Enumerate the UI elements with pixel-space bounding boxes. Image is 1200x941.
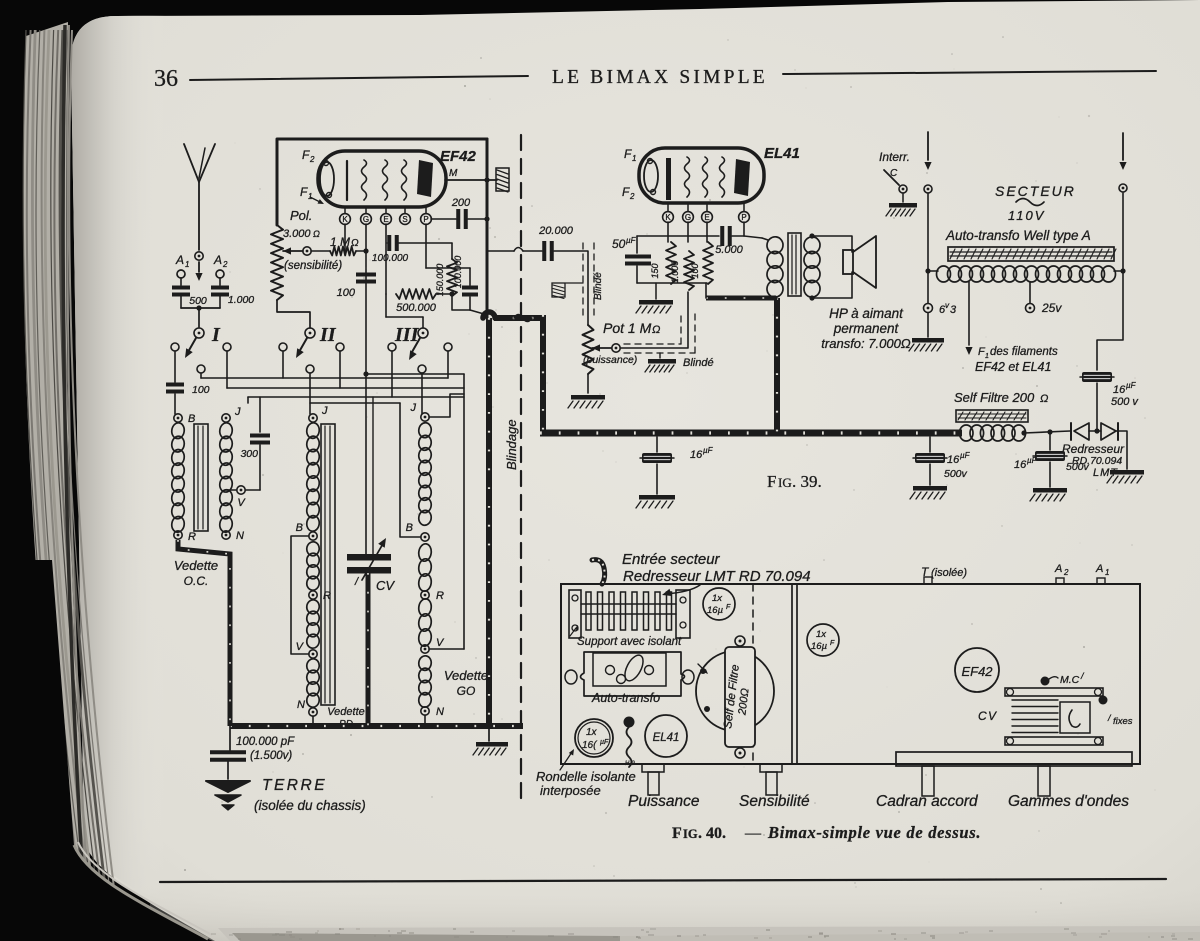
svg-text:B: B (406, 522, 413, 534)
svg-text:M.C: M.C (1060, 674, 1080, 686)
svg-text:B: B (296, 522, 303, 534)
svg-text:V: V (988, 709, 997, 723)
svg-text:F: F (672, 825, 682, 842)
svg-text:100: 100 (337, 287, 356, 299)
svg-text:Sensibilité: Sensibilité (739, 793, 810, 810)
svg-text:F: F (300, 185, 308, 199)
svg-text:E: E (383, 215, 388, 224)
svg-text:EF42: EF42 (961, 664, 993, 679)
svg-text:(isolée du chassis): (isolée du chassis) (254, 798, 366, 813)
svg-text:F: F (830, 640, 835, 647)
svg-text:150: 150 (650, 263, 660, 278)
svg-text:500: 500 (189, 295, 207, 307)
svg-text:16(: 16( (582, 740, 598, 751)
svg-text:N: N (236, 530, 244, 542)
svg-text:1.000: 1.000 (670, 261, 680, 284)
svg-text:transfo: 7.000Ω: transfo: 7.000Ω (821, 336, 910, 351)
svg-text:1: 1 (185, 260, 189, 269)
svg-text:I: I (211, 324, 221, 346)
svg-text:(puissance): (puissance) (583, 354, 637, 366)
svg-text:Ω: Ω (1040, 393, 1048, 405)
svg-text:3: 3 (950, 304, 957, 316)
svg-text:G: G (363, 215, 369, 224)
svg-text:Gammes d'ondes: Gammes d'ondes (1008, 793, 1129, 810)
svg-text:1: 1 (632, 154, 636, 163)
svg-text:µF: µF (703, 446, 714, 455)
svg-text:EF42: EF42 (440, 148, 477, 165)
svg-text:K: K (665, 213, 671, 222)
svg-text:16µ: 16µ (811, 641, 828, 652)
svg-text:EL41: EL41 (653, 732, 680, 744)
svg-text:GO: GO (457, 684, 476, 698)
svg-text:(sensibilité): (sensibilité) (284, 260, 342, 272)
svg-text:2: 2 (629, 192, 635, 201)
svg-text:Ω: Ω (652, 324, 660, 336)
svg-text:100: 100 (690, 263, 700, 278)
svg-text:EL41: EL41 (764, 145, 800, 162)
svg-text:K: K (342, 215, 348, 224)
svg-text:Self Filtre 200: Self Filtre 200 (954, 390, 1035, 405)
svg-text:200: 200 (451, 197, 471, 209)
svg-text:µF: µF (1027, 456, 1038, 465)
svg-text:2: 2 (222, 260, 228, 269)
svg-text:1: 1 (985, 353, 989, 360)
svg-text:N: N (436, 706, 444, 718)
svg-text:16µ: 16µ (707, 605, 724, 616)
svg-text:LE BIMAX SIMPLE: LE BIMAX SIMPLE (552, 67, 768, 88)
svg-text:Support avec isolant: Support avec isolant (577, 636, 682, 648)
svg-text:PD: PD (339, 719, 353, 730)
svg-text:A: A (175, 253, 184, 267)
svg-text:interposée: interposée (540, 783, 601, 798)
svg-text:Ω: Ω (351, 238, 359, 249)
svg-text:25v: 25v (1041, 301, 1062, 315)
svg-text:F: F (624, 147, 632, 161)
svg-text:Redresseur: Redresseur (1062, 442, 1125, 456)
svg-text:P: P (741, 213, 746, 222)
svg-text:µF: µF (1126, 381, 1137, 390)
svg-text:100.000 pF: 100.000 pF (236, 736, 295, 748)
svg-text:36: 36 (154, 66, 178, 92)
svg-text:Puissance: Puissance (628, 793, 700, 810)
svg-text:100.000: 100.000 (453, 256, 463, 289)
svg-text:110V: 110V (1008, 208, 1045, 223)
svg-text:M: M (449, 168, 458, 179)
svg-text:1x: 1x (712, 593, 723, 604)
svg-text:B: B (188, 413, 195, 425)
svg-text:Redresseur LMT RD 70.094: Redresseur LMT RD 70.094 (623, 568, 811, 585)
svg-text:1.000: 1.000 (228, 294, 254, 306)
svg-text:. 40.: . 40. (698, 825, 726, 842)
svg-text:Pot 1 M: Pot 1 M (603, 320, 652, 336)
svg-text:permanent: permanent (833, 321, 900, 336)
svg-text:fixes: fixes (1113, 716, 1133, 727)
svg-text:16: 16 (947, 454, 960, 466)
svg-text:Auto-transfo Well type A: Auto-transfo Well type A (945, 228, 1091, 243)
svg-text:N: N (297, 699, 305, 711)
svg-text:Pol.: Pol. (290, 208, 312, 223)
svg-text:III: III (394, 324, 420, 346)
svg-text:2: 2 (309, 155, 315, 164)
svg-text:HP à aimant: HP à aimant (829, 306, 904, 321)
svg-text:IG: IG (683, 827, 698, 841)
svg-text:1 M: 1 M (330, 235, 350, 249)
svg-text:CV: CV (376, 578, 395, 593)
svg-text:1: 1 (1105, 568, 1109, 577)
svg-text:20.000: 20.000 (538, 225, 574, 237)
svg-text:16: 16 (690, 449, 703, 461)
svg-text:Vedette: Vedette (327, 706, 365, 718)
svg-text:SECTEUR: SECTEUR (995, 183, 1076, 199)
svg-text:50: 50 (612, 237, 626, 251)
svg-text:Blindage: Blindage (504, 419, 519, 470)
svg-text:500v: 500v (944, 468, 968, 480)
svg-text:500v: 500v (1066, 461, 1090, 473)
svg-text:2: 2 (1063, 568, 1069, 577)
svg-text:F: F (726, 604, 731, 611)
svg-text:G: G (685, 213, 691, 222)
svg-text:TERRE: TERRE (262, 777, 327, 794)
svg-text:3.000: 3.000 (283, 228, 311, 240)
svg-text:µF: µF (600, 739, 609, 746)
svg-text:II: II (319, 324, 337, 346)
svg-text:µF: µF (960, 451, 971, 460)
svg-text:C: C (978, 709, 987, 723)
svg-text:Ω: Ω (313, 229, 320, 239)
svg-text:J: J (410, 402, 417, 414)
svg-text:16: 16 (1014, 459, 1027, 471)
svg-text:Vedette: Vedette (174, 558, 218, 573)
svg-text:A: A (213, 253, 222, 267)
svg-text:F: F (302, 148, 310, 162)
svg-text:1x: 1x (586, 727, 598, 738)
svg-text:Interr.: Interr. (879, 150, 910, 164)
svg-text:Bimax-simple vue de dessus.: Bimax-simple vue de dessus. (767, 823, 981, 842)
svg-text:EF42 et EL41: EF42 et EL41 (975, 360, 1051, 374)
svg-text:µF: µF (626, 236, 637, 245)
svg-text:A: A (1095, 563, 1103, 575)
svg-text:F: F (622, 185, 630, 199)
svg-text:(isolée): (isolée) (931, 567, 967, 579)
svg-text:16: 16 (1113, 384, 1126, 396)
svg-text:500 v: 500 v (1111, 396, 1139, 408)
svg-text:R: R (323, 590, 331, 602)
svg-text:Entrée secteur: Entrée secteur (622, 551, 721, 568)
svg-text:A: A (1054, 563, 1062, 575)
svg-text:des filaments: des filaments (990, 346, 1058, 358)
svg-text:Rondelle isolante: Rondelle isolante (536, 769, 636, 784)
svg-text:P: P (423, 215, 428, 224)
svg-text:J: J (234, 406, 241, 418)
svg-text:—: — (744, 825, 762, 842)
svg-text:R: R (436, 590, 444, 602)
svg-text:H-9: H-9 (625, 761, 635, 767)
svg-text:Blindé: Blindé (593, 272, 604, 300)
svg-text:500.000: 500.000 (396, 302, 437, 314)
svg-text:J: J (321, 405, 328, 417)
svg-text:R: R (188, 531, 196, 543)
svg-text:1x: 1x (816, 629, 827, 640)
svg-text:100.000: 100.000 (372, 253, 409, 264)
svg-text:100: 100 (192, 384, 210, 396)
svg-text:. 39.: . 39. (792, 472, 822, 491)
svg-text:Auto-transfo: Auto-transfo (591, 691, 660, 705)
svg-text:5.000: 5.000 (715, 244, 743, 256)
svg-text:Blindé: Blindé (683, 357, 714, 369)
svg-text:Cadran accord: Cadran accord (876, 793, 979, 810)
svg-text:300: 300 (240, 448, 258, 460)
svg-text:F: F (767, 472, 776, 491)
svg-text:IG: IG (778, 475, 792, 490)
svg-text:(1.500v): (1.500v) (250, 750, 292, 762)
svg-text:E: E (704, 213, 709, 222)
svg-text:S: S (402, 215, 407, 224)
svg-text:Vedette: Vedette (444, 668, 488, 683)
svg-text:O.C.: O.C. (184, 574, 209, 588)
